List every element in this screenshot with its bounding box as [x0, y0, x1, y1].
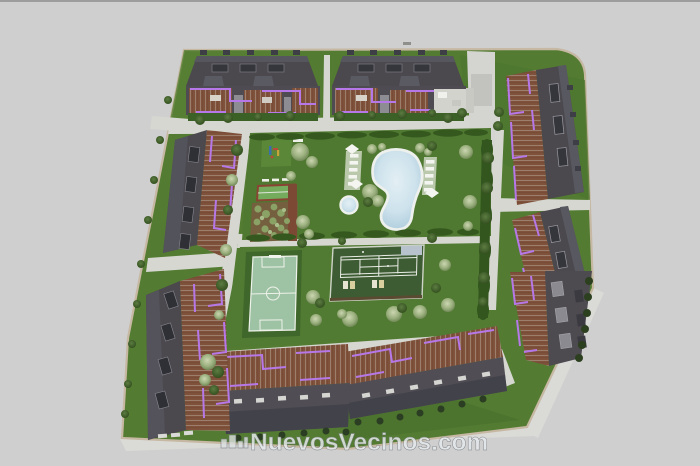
svg-text:NuevosVecinos.com: NuevosVecinos.com [250, 429, 488, 456]
